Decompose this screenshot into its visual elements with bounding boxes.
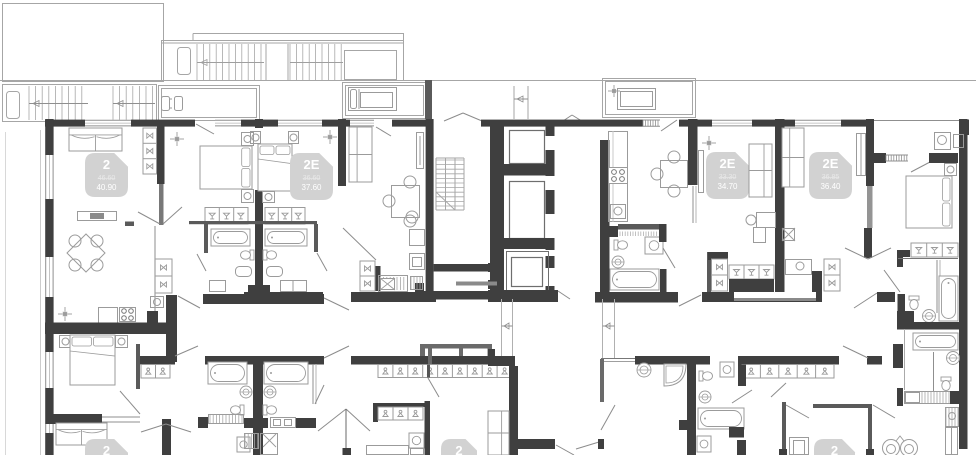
svg-text:33.30: 33.30 [719,174,737,181]
svg-text:2Е: 2Е [720,156,736,171]
svg-text:2Е: 2Е [304,157,320,172]
svg-text:36.40: 36.40 [820,182,841,191]
svg-text:40.90: 40.90 [96,183,117,192]
svg-text:46.60: 46.60 [98,175,116,182]
svg-text:2Е: 2Е [823,156,839,171]
svg-text:2: 2 [103,443,110,455]
svg-text:2: 2 [455,443,462,455]
svg-text:36.85: 36.85 [822,174,840,181]
svg-text:2: 2 [831,443,838,455]
svg-text:37.60: 37.60 [301,183,322,192]
svg-text:34.70: 34.70 [717,182,738,191]
svg-text:2: 2 [103,157,110,172]
svg-text:36.60: 36.60 [303,175,321,182]
